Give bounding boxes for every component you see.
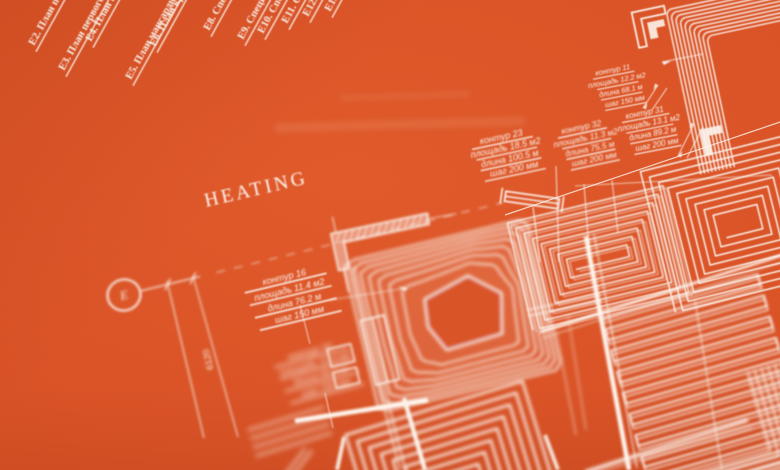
svg-text:HEATING: HEATING [202, 168, 310, 212]
svg-text:Е2. План подвала: Е2. План подвала [27, 0, 78, 47]
svg-text:Е: Е [117, 287, 129, 304]
svg-text:Е5. План мансардного этажа: Е5. План мансардного этажа [124, 0, 201, 81]
